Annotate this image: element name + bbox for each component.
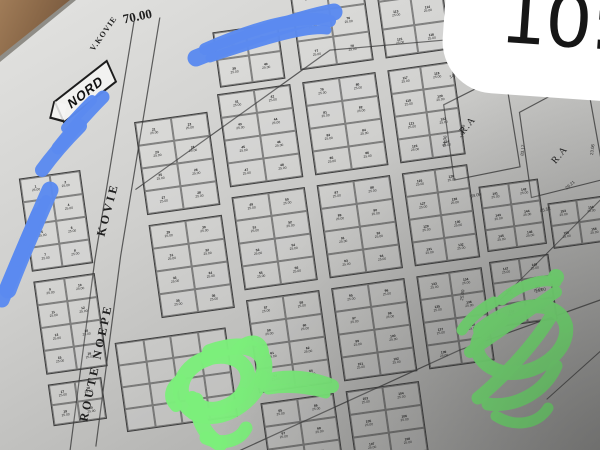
parcel-cell-text: 5825.00: [298, 301, 307, 309]
parcel-dimension: 25.00: [248, 206, 257, 211]
parcel-cell: 1525.00: [44, 347, 77, 374]
parcel-dimension: 25.00: [351, 320, 360, 325]
parcel-cell-text: 2325.00: [153, 151, 162, 159]
parcel-cell: 3925.00: [217, 55, 252, 86]
parcel-dimension: 25.00: [72, 252, 81, 257]
parcel-cell-text: 5725.00: [262, 306, 271, 314]
parcel-dimension: 25.00: [325, 137, 334, 142]
parcel-cell-text: 4225.00: [269, 95, 278, 103]
parcel-cell-text: 4725.00: [243, 168, 252, 176]
parcel-cell-text: 5325.00: [254, 249, 263, 257]
parcel-dimension: 25.00: [383, 292, 392, 297]
parcel-cell-text: 7325.00: [305, 0, 314, 1]
north-arrow-tip: [49, 101, 67, 122]
parcel-cell-text: 10425.00: [397, 392, 406, 400]
parcel-dimension: 25.00: [280, 435, 289, 440]
parcel-cell: 5525.00: [242, 261, 281, 289]
parcel-dimension: 25.00: [451, 201, 460, 206]
parcel-cell-text: 3725.00: [227, 40, 236, 48]
parcel-cell-text: 4425.00: [272, 118, 281, 126]
parcel-dimension: 25.00: [237, 126, 246, 131]
parcel-cell: 8625.00: [349, 141, 388, 169]
parcel-cell: 15125.00: [496, 301, 528, 326]
parcel-cell: 825.00: [59, 240, 92, 267]
parcel-dimension: 25.00: [454, 224, 463, 229]
parcel-dimension: 25.00: [392, 13, 401, 18]
parcel-cell-text: 125.00: [32, 185, 41, 193]
parcel-dimension: 25.00: [357, 109, 366, 114]
parcel-dimension: 25.00: [62, 184, 71, 189]
parcel-dimension: 25.00: [404, 441, 413, 446]
parcel-cell-text: 2425.00: [189, 146, 198, 154]
parcel-block: 7325.007425.007525.007625.007725.007825.…: [289, 0, 374, 70]
parcel-cell: 14525.00: [485, 226, 517, 251]
parcel-cell-text: 14025.00: [472, 346, 481, 354]
parcel-dimension: 25.00: [243, 172, 252, 177]
parcel-cell-text: 13225.00: [457, 243, 466, 251]
parcel-dimension: 25.00: [472, 350, 481, 355]
parcel-dimension: 25.00: [210, 298, 219, 303]
parcel-cell: [152, 402, 182, 428]
parcel-cell-text: 11925.00: [405, 99, 414, 107]
parcel-dimension: 25.00: [491, 196, 500, 201]
parcel-cell: 11525.00: [383, 25, 419, 57]
parcel-dimension: 25.00: [458, 247, 467, 252]
parcel-dimension: 25.00: [189, 149, 198, 154]
parcel-cell-text: 625.00: [68, 226, 77, 234]
parcel-cell-text: 14625.00: [525, 230, 534, 238]
parcel-dimension: 25.00: [520, 192, 529, 197]
parcel-cell: 3525.00: [159, 289, 198, 317]
parcel-block: 4125.004225.004325.004425.004525.004625.…: [217, 84, 303, 187]
parcel-cell: 7725.00: [297, 37, 337, 70]
parcel-dimension: 25.00: [431, 286, 440, 291]
parcel-cell-text: 11525.00: [396, 37, 405, 45]
parcel-dimension: 25.00: [240, 149, 249, 154]
parcel-dimension: 25.00: [254, 252, 263, 257]
parcel-cell: 10225.00: [377, 347, 416, 375]
parcel-cell-text: 6725.00: [280, 432, 289, 440]
parcel-cell-text: 5025.00: [283, 198, 292, 206]
parcel-cell-text: 13125.00: [425, 248, 434, 256]
parcel-cell-text: 14525.00: [497, 234, 506, 242]
parcel-cell-text: 10625.00: [400, 415, 409, 423]
parcel-cell-text: 6225.00: [304, 347, 313, 355]
parcel-cell-text: 9125.00: [339, 237, 348, 245]
parcel-dimension: 25.00: [563, 234, 572, 239]
parcel-cell-text: 10225.00: [392, 357, 401, 365]
parcel-block: 14725.0014825.0014925.0015025.0015125.00…: [489, 254, 558, 328]
parcel-cell-text: 4625.00: [275, 141, 284, 149]
parcel-cell-text: 2825.00: [195, 191, 204, 199]
parcel-dimension: 25.00: [272, 121, 281, 126]
parcel-cell-text: 14225.00: [520, 188, 529, 196]
parcel-cell-text: 425.00: [65, 203, 74, 211]
parcel-cell-text: 9325.00: [342, 259, 351, 267]
parcel-cell: [125, 405, 155, 431]
parcel-cell-text: 5125.00: [251, 226, 260, 234]
parcel-cell: 13125.00: [413, 238, 448, 265]
parcel-dimension: 25.00: [175, 303, 184, 308]
parcel-dimension: 25.00: [393, 361, 402, 366]
parcel-cell-text: 1425.00: [82, 329, 91, 337]
parcel-block: 10325.0010425.0010525.0010625.0010725.00…: [346, 381, 432, 450]
parcel-cell-text: 4025.00: [262, 63, 271, 71]
parcel-dimension: 25.00: [401, 418, 410, 423]
parcel-dimension: 25.00: [531, 267, 540, 272]
parcel-cell-text: 7625.00: [344, 16, 353, 24]
parcel-cell-text: 11425.00: [424, 5, 433, 13]
parcel-cell: 15425.00: [576, 196, 600, 222]
parcel-dimension: 25.00: [345, 20, 354, 25]
parcel-dimension: 25.00: [65, 207, 74, 212]
parcel-dimension: 25.00: [508, 313, 517, 318]
parcel-dimension: 25.00: [426, 251, 435, 256]
parcel-cell-text: 9725.00: [350, 317, 359, 325]
parcel-cell-text: 15525.00: [562, 231, 571, 239]
parcel-dimension: 25.00: [62, 413, 71, 418]
parcel-cell-text: 6125.00: [268, 352, 277, 360]
parcel-dimension: 25.00: [375, 235, 384, 240]
parcel-cell-text: 15325.00: [559, 209, 568, 217]
parcel-dimension: 25.00: [497, 238, 506, 243]
parcel-cell-text: 14825.00: [530, 263, 539, 271]
parcel-cell: 15225.00: [525, 297, 557, 322]
parcel-cell: 10825.00: [389, 428, 428, 450]
parcel-dimension: 25.00: [313, 52, 322, 57]
parcel-dimension: 25.00: [269, 98, 278, 103]
parcel-dimension: 25.00: [411, 148, 420, 153]
parcel-cell-text: 2925.00: [165, 231, 174, 239]
parcel-dimension: 25.00: [343, 263, 352, 268]
parcel-dimension: 25.00: [372, 212, 381, 217]
parcel-cell: 15525.00: [552, 222, 583, 248]
parcel-cell-text: 1325.00: [53, 333, 62, 341]
parcel-cell-text: 8225.00: [357, 106, 366, 114]
parcel-cell-text: 325.00: [35, 208, 44, 216]
parcel-cell-text: 14325.00: [494, 213, 503, 221]
parcel-dimension: 25.00: [298, 304, 307, 309]
parcel-dimension: 25.00: [258, 275, 267, 280]
parcel-dimension: 25.00: [419, 206, 428, 211]
parcel-dimension: 25.00: [39, 234, 48, 239]
parcel-cell-text: 7925.00: [318, 88, 327, 96]
parcel-cell-text: 9425.00: [378, 254, 387, 262]
parcel-dimension: 25.00: [319, 91, 328, 96]
parcel-dimension: 25.00: [279, 167, 288, 172]
parcel-dimension: 25.00: [259, 39, 268, 44]
parcel-dimension: 25.00: [227, 44, 236, 49]
parcel-cell: 13925.00: [427, 341, 462, 368]
parcel-dimension: 25.00: [80, 310, 89, 315]
parcel-cell-text: 1925.00: [61, 409, 70, 417]
parcel-cell: 2725.00: [145, 186, 184, 214]
parcel-dimension: 25.00: [405, 103, 414, 108]
parcel-dimension: 25.00: [354, 343, 363, 348]
parcel-dimension: 25.00: [365, 423, 374, 428]
parcel-dimension: 25.00: [157, 177, 166, 182]
parcel-cell-text: 8425.00: [360, 129, 369, 137]
parcel-cell-text: 12525.00: [416, 179, 425, 187]
parcel-dimension: 25.00: [362, 400, 371, 405]
parcel-dimension: 25.00: [287, 224, 296, 229]
parcel-dimension: 25.00: [290, 247, 299, 252]
parcel-cell-text: 3325.00: [171, 276, 180, 284]
parcel-cell-text: 3425.00: [207, 271, 216, 279]
parcel-dimension: 25.00: [269, 355, 278, 360]
parcel-dimension: 25.00: [160, 200, 169, 205]
parcel-cell-text: 3825.00: [258, 36, 267, 44]
parcel-cell-text: 15625.00: [590, 227, 599, 235]
parcel-block: 15325.0015425.0015525.0015625.00: [547, 195, 600, 249]
parcel-cell: 3625.00: [195, 284, 234, 312]
parcel-cell-text: 725.00: [41, 253, 50, 261]
parcel-dimension: 25.00: [263, 66, 272, 71]
parcel-block: 7925.008025.008125.008225.008325.008425.…: [302, 72, 388, 175]
parcel-cell-text: 5425.00: [290, 244, 299, 252]
parcel-cell-text: 10325.00: [362, 397, 371, 405]
parcel-dimension: 25.00: [151, 131, 160, 136]
parcel-cell: 725.00: [30, 244, 63, 271]
parcel-dimension: 25.00: [293, 270, 302, 275]
parcel-dimension: 25.00: [68, 230, 77, 235]
parcel-dimension: 25.00: [204, 252, 213, 257]
parcel-dimension: 25.00: [83, 333, 92, 338]
parcel-cell-text: 4825.00: [278, 163, 287, 171]
parcel-cell-text: 14425.00: [522, 209, 531, 217]
parcel-dimension: 25.00: [591, 230, 600, 235]
parcel-cell-text: 5925.00: [265, 329, 274, 337]
parcel-cell-text: 12725.00: [419, 202, 428, 210]
parcel-dimension: 25.00: [364, 155, 373, 160]
parcel-cell-text: 14925.00: [504, 289, 513, 297]
parcel-dimension: 25.00: [402, 80, 411, 85]
parcel-block: 12525.0012625.0012725.0012825.0012925.00…: [402, 164, 480, 266]
parcel-cell-text: 8725.00: [333, 191, 342, 199]
parcel-block: 8725.008825.008925.009025.009125.009225.…: [317, 175, 403, 278]
parcel-cell-text: 3025.00: [200, 226, 209, 234]
parcel-cell-text: 6025.00: [301, 324, 310, 332]
parcel-dimension: 25.00: [378, 258, 387, 263]
parcel-cell-text: 8025.00: [354, 83, 363, 91]
parcel-cell: 7825.00: [333, 32, 373, 65]
parcel-cell: 1925.00: [52, 402, 81, 425]
parcel-cell-text: 10525.00: [365, 420, 374, 428]
parcel-cell-text: 6425.00: [307, 369, 316, 377]
parcel-dimension: 25.00: [423, 228, 432, 233]
parcel-cell-text: 12925.00: [422, 225, 431, 233]
parcel-cell-text: 8825.00: [368, 186, 377, 194]
parcel-cell: [179, 398, 209, 424]
parcel-cell-text: 13725.00: [437, 328, 446, 336]
parcel-dimension: 25.00: [171, 280, 180, 285]
parcel-cell-text: 10825.00: [404, 438, 413, 446]
parcel-cell-text: 9925.00: [353, 340, 362, 348]
parcel-cell-text: 225.00: [62, 181, 71, 189]
empty-grid-block: [115, 327, 238, 432]
parcel-dimension: 25.00: [165, 234, 174, 239]
parcel-dimension: 25.00: [328, 160, 337, 165]
parcel-dimension: 25.00: [201, 229, 210, 234]
parcel-dimension: 25.00: [537, 309, 546, 314]
parcel-dimension: 25.00: [369, 189, 378, 194]
parcel-dimension: 25.00: [349, 47, 358, 52]
parcel-cell-text: 1025.00: [76, 284, 85, 292]
parcel-cell: 15625.00: [579, 218, 600, 244]
parcel-block: 14125.0014225.0014325.0014425.0014525.00…: [478, 178, 547, 252]
parcel-dimension: 25.00: [339, 240, 348, 245]
parcel-dimension: 25.00: [354, 86, 363, 91]
parcel-dimension: 25.00: [462, 281, 471, 286]
parcel-cell: 13225.00: [444, 234, 479, 261]
parcel-cell-text: 8625.00: [363, 151, 372, 159]
parcel-cell-text: 13525.00: [433, 305, 442, 313]
parcel-cell-text: 12125.00: [408, 122, 417, 130]
parcel-cell-text: 1225.00: [79, 306, 88, 314]
parcel-dimension: 25.00: [36, 211, 45, 216]
parcel-cell-text: 15425.00: [587, 205, 596, 213]
parcel-dimension: 25.00: [437, 98, 446, 103]
parcel-cell-text: 8125.00: [321, 111, 330, 119]
parcel-dimension: 25.00: [560, 213, 569, 218]
parcel-cell-text: 2125.00: [150, 128, 159, 136]
parcel-cell-text: 8325.00: [325, 134, 334, 142]
parcel-block: 3725.003825.003925.004025.00: [212, 23, 285, 88]
parcel-cell-text: 9025.00: [371, 209, 380, 217]
parcel-cell: 8525.00: [313, 146, 352, 174]
parcel-cell-text: 2525.00: [156, 173, 165, 181]
parcel-cell-text: 8925.00: [336, 214, 345, 222]
parcel-cell-text: 9525.00: [347, 294, 356, 302]
parcel-dimension: 25.00: [434, 309, 443, 314]
parcel-dimension: 25.00: [424, 8, 433, 13]
parcel-dimension: 25.00: [233, 103, 242, 108]
parcel-dimension: 25.00: [448, 178, 457, 183]
parcel-cell: 14025.00: [459, 337, 494, 364]
parcel-dimension: 25.00: [361, 132, 370, 137]
parcel-cell: 12325.00: [398, 135, 433, 162]
parcel-cell-text: 15125.00: [507, 310, 516, 318]
parcel-dimension: 25.00: [348, 297, 357, 302]
parcel-dimension: 25.00: [266, 332, 275, 337]
parcel-dimension: 25.00: [251, 229, 260, 234]
parcel-dimension: 25.00: [416, 183, 425, 188]
parcel-dimension: 25.00: [308, 373, 317, 378]
parcel-dimension: 25.00: [193, 172, 202, 177]
parcel-dimension: 25.00: [47, 291, 56, 296]
parcel-cell-text: 3625.00: [210, 294, 219, 302]
parcel-cell-text: 13825.00: [468, 323, 477, 331]
parcel-cell-text: 13625.00: [465, 301, 474, 309]
parcel-dimension: 25.00: [396, 41, 405, 46]
parcel-dimension: 25.00: [32, 188, 41, 193]
parcel-cell-text: 11825.00: [433, 72, 442, 80]
parcel-block: 9525.009625.009725.009825.009925.0010025…: [331, 278, 417, 381]
parcel-cell-text: 13325.00: [430, 282, 439, 290]
parcel-cell-text: 3225.00: [203, 249, 212, 257]
parcel-dimension: 25.00: [186, 126, 195, 131]
parcel-dimension: 25.00: [505, 292, 514, 297]
parcel-dimension: 25.00: [502, 271, 511, 276]
parcel-cell-text: 10125.00: [357, 362, 366, 370]
parcel-dimension: 25.00: [322, 114, 331, 119]
parcel-cell-text: 825.00: [71, 249, 80, 257]
parcel-dimension: 25.00: [526, 234, 535, 239]
parcel-cell-text: 13025.00: [454, 220, 463, 228]
parcel-cell-text: 3925.00: [230, 67, 239, 75]
parcel-cell: 4725.00: [228, 158, 267, 186]
parcel-cell: 6425.00: [292, 359, 331, 387]
parcel-cell-text: 6325.00: [272, 374, 281, 382]
parcel-dimension: 25.00: [437, 331, 446, 336]
parcel-cell-text: 9625.00: [383, 289, 392, 297]
parcel-cell-text: 525.00: [38, 230, 47, 238]
parcel-dimension: 25.00: [523, 213, 532, 218]
parcel-cell: 9425.00: [363, 244, 402, 272]
parcel-cell-text: 1725.00: [59, 390, 68, 398]
parcel-dimension: 25.00: [336, 217, 345, 222]
parcel-dimension: 25.00: [53, 337, 62, 342]
parcel-dimension: 25.00: [469, 327, 478, 332]
parcel-cell: 4825.00: [263, 153, 302, 181]
parcel-dimension: 25.00: [398, 395, 407, 400]
parcel-cell-text: 13425.00: [462, 278, 471, 286]
parcel-dimension: 25.00: [313, 407, 322, 412]
parcel-cell: 4025.00: [249, 51, 284, 82]
parcel-cell-text: 5525.00: [257, 271, 266, 279]
parcel-dimension: 25.00: [333, 194, 342, 199]
parcel-dimension: 25.00: [272, 378, 281, 383]
parcel-block: 5725.005825.005925.006025.006125.006225.…: [246, 290, 332, 393]
parcel-dimension: 25.00: [428, 36, 437, 41]
parcel-cell-text: 12625.00: [447, 175, 456, 183]
parcel-cell: 5625.00: [278, 256, 317, 284]
parcel-dimension: 25.00: [231, 70, 240, 75]
parcel-dimension: 25.00: [59, 393, 68, 398]
parcel-cell-text: 1525.00: [56, 356, 65, 364]
parcel-dimension: 25.00: [466, 304, 475, 309]
parcel-cell-text: 4925.00: [247, 203, 256, 211]
parcel-cell-text: 1125.00: [49, 311, 58, 319]
parcel-dimension: 25.00: [76, 287, 85, 292]
parcel-block: 11125.0011225.0011325.0011425.0011525.00…: [374, 0, 451, 58]
parcel-block: 125.00225.00325.00425.00525.00625.00725.…: [19, 170, 93, 272]
parcel-cell: 10125.00: [342, 352, 381, 380]
parcel-cell-text: 10725.00: [368, 443, 377, 450]
parcel-dimension: 25.00: [386, 315, 395, 320]
parcel-dimension: 25.00: [357, 366, 366, 371]
parcel-dimension: 25.00: [262, 309, 271, 314]
clock-time: 10:: [498, 0, 600, 62]
parcel-cell-text: 6525.00: [276, 409, 285, 417]
parcel-cell-text: 4125.00: [233, 100, 242, 108]
parcel-block: 13325.0013425.0013525.0013625.0013725.00…: [416, 267, 494, 369]
parcel-cell-text: 7725.00: [313, 49, 322, 57]
parcel-cell-text: 10025.00: [389, 335, 398, 343]
parcel-cell-text: 6825.00: [315, 427, 324, 435]
parcel-cell-text: 12025.00: [436, 95, 445, 103]
photo-of-cadastral-map: NORD 125.00225.00325.00425.00525.00625.0…: [0, 0, 600, 450]
parcel-block: 2925.003025.003125.003225.003325.003425.…: [149, 215, 235, 318]
parcel-dimension: 25.00: [277, 412, 286, 417]
parcel-cell-text: 7525.00: [309, 21, 318, 29]
parcel-dimension: 25.00: [56, 360, 65, 365]
parcel-cell-text: 9225.00: [375, 232, 384, 240]
parcel-cell: 14625.00: [514, 222, 546, 247]
parcel-dimension: 25.00: [305, 0, 314, 1]
parcel-cell-text: 2225.00: [186, 123, 195, 131]
parcel-dimension: 25.00: [301, 327, 310, 332]
